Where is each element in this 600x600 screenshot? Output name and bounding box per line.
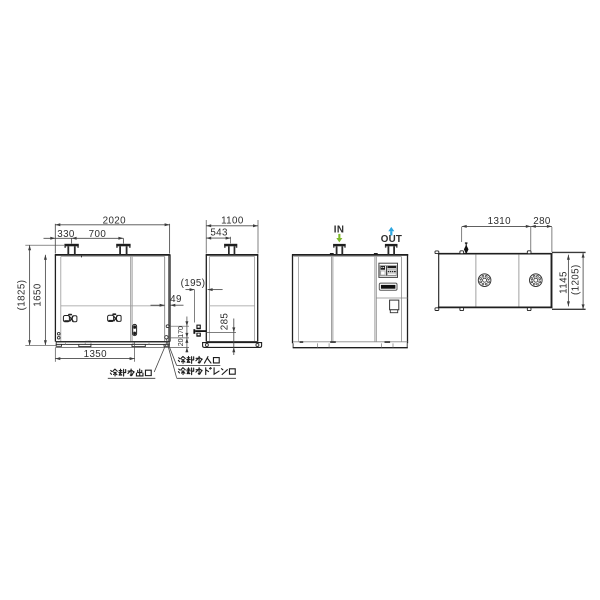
svg-text:1310: 1310 — [488, 216, 512, 227]
svg-text:2020: 2020 — [103, 216, 127, 227]
svg-text:170: 170 — [178, 326, 185, 338]
svg-text:700: 700 — [89, 229, 107, 240]
svg-text:(195): (195) — [181, 278, 206, 289]
svg-text:(1825): (1825) — [17, 280, 28, 311]
svg-text:OUT: OUT — [381, 234, 402, 245]
svg-text:330: 330 — [57, 229, 75, 240]
svg-text:543: 543 — [210, 227, 228, 238]
svg-text:285: 285 — [219, 313, 230, 331]
svg-text:49: 49 — [170, 294, 182, 305]
svg-text:1100: 1100 — [221, 215, 244, 226]
svg-text:280: 280 — [533, 216, 551, 227]
svg-text:1350: 1350 — [84, 349, 108, 360]
svg-text:20: 20 — [178, 338, 185, 346]
svg-text:(1205): (1205) — [571, 264, 582, 295]
svg-text:1650: 1650 — [33, 283, 44, 307]
svg-text:IN: IN — [334, 224, 344, 235]
svg-text:1145: 1145 — [558, 271, 569, 294]
